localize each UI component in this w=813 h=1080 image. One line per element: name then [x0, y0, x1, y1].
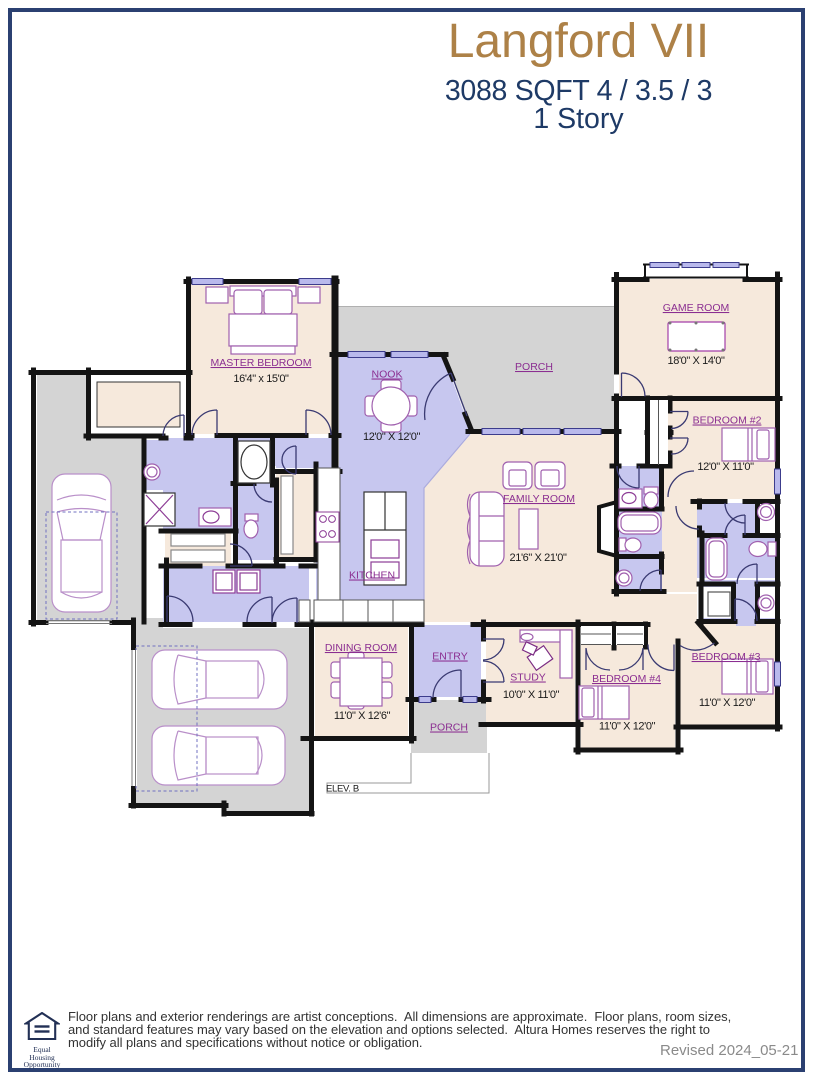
svg-text:BEDROOM #4: BEDROOM #4 — [592, 673, 661, 685]
svg-text:DINING ROOM: DINING ROOM — [325, 642, 397, 654]
svg-text:10'0" X 11'0": 10'0" X 11'0" — [503, 689, 560, 701]
svg-text:PORCH: PORCH — [430, 722, 468, 734]
svg-text:GAME ROOM: GAME ROOM — [663, 302, 730, 314]
svg-text:PORCH: PORCH — [515, 361, 553, 373]
svg-text:MASTER BEDROOM: MASTER BEDROOM — [211, 357, 312, 369]
svg-text:18'0" X 14'0": 18'0" X 14'0" — [668, 355, 725, 367]
svg-text:11'0" X 12'0": 11'0" X 12'0" — [699, 697, 756, 709]
svg-text:ELEV. B: ELEV. B — [326, 784, 359, 795]
svg-text:12'0" X 11'0": 12'0" X 11'0" — [697, 461, 754, 473]
svg-text:11'0" X 12'0": 11'0" X 12'0" — [599, 721, 656, 733]
svg-text:FAMILY ROOM: FAMILY ROOM — [503, 493, 575, 505]
svg-text:KITCHEN: KITCHEN — [349, 570, 395, 582]
svg-text:16'4" x 15'0": 16'4" x 15'0" — [233, 373, 289, 385]
svg-text:ENTRY: ENTRY — [432, 651, 467, 663]
svg-text:STUDY: STUDY — [510, 672, 546, 684]
svg-text:BEDROOM #2: BEDROOM #2 — [693, 415, 762, 427]
svg-text:12'0" X 12'0": 12'0" X 12'0" — [363, 431, 420, 443]
svg-text:BEDROOM #3: BEDROOM #3 — [692, 651, 761, 663]
svg-text:21'6" X 21'0": 21'6" X 21'0" — [510, 552, 567, 564]
svg-text:NOOK: NOOK — [372, 369, 403, 381]
svg-text:11'0" X 12'6": 11'0" X 12'6" — [334, 710, 391, 722]
